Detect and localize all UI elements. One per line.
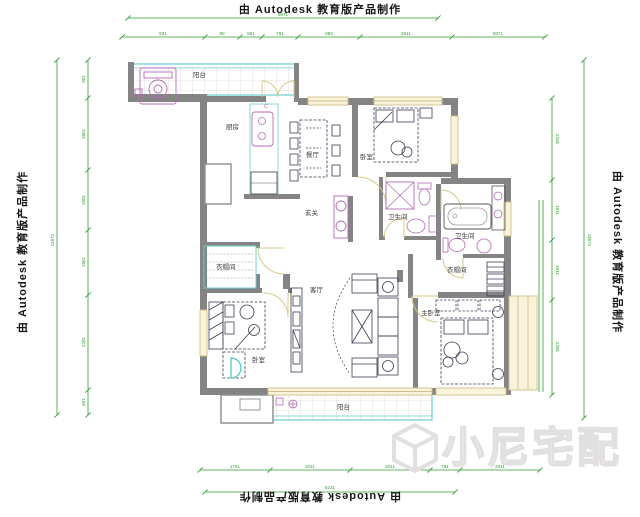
bathroom-right-fixtures	[443, 186, 505, 253]
room-label-bedroom-left: 卧室	[252, 355, 266, 364]
bathroom-center-fixtures	[386, 182, 437, 233]
room-label-cloakroom-right: 衣帽间	[447, 265, 467, 274]
room-label-kitchen: 厨房	[226, 122, 239, 131]
svg-text:761: 761	[276, 31, 284, 36]
svg-text:2101: 2101	[555, 134, 560, 145]
balcony-top-area	[133, 64, 296, 95]
svg-text:931: 931	[159, 31, 167, 36]
entry-cabinet	[334, 196, 348, 238]
living-room-furniture	[291, 274, 398, 377]
room-labels: 阳台 厨房 餐厅 卧室 卫生间 卫生间 衣帽间 主卧室 客厅 卧室 衣帽间 玄关…	[193, 70, 475, 411]
svg-text:601: 601	[81, 398, 86, 406]
room-label-balcony-bottom: 阳台	[337, 402, 350, 411]
svg-text:883: 883	[325, 31, 333, 36]
watermark-cube-icon	[392, 423, 438, 473]
svg-text:5871: 5871	[493, 31, 504, 36]
room-label-bedroom-top-right: 卧室	[360, 152, 374, 161]
stair-lobby	[221, 395, 273, 423]
autodesk-credit-bottom: 由 Autodesk 教育版产品制作	[0, 489, 640, 505]
kitchen-counter	[250, 104, 278, 194]
svg-text:1511: 1511	[555, 265, 560, 275]
room-label-bathroom-center: 卫生间	[388, 212, 408, 221]
autodesk-credit-left: 由 Autodesk 教育版产品制作	[14, 171, 30, 333]
master-bed	[436, 300, 504, 384]
svg-text:1801: 1801	[81, 128, 86, 139]
svg-text:2281: 2281	[81, 336, 86, 347]
svg-text:2611: 2611	[401, 31, 411, 36]
autodesk-credit-top: 由 Autodesk 教育版产品制作	[0, 1, 640, 17]
bed-top-right	[374, 108, 432, 162]
svg-text:1761: 1761	[230, 464, 241, 469]
room-label-master-bedroom: 主卧室	[421, 308, 441, 317]
svg-text:901: 901	[81, 75, 86, 83]
svg-text:2011: 2011	[305, 464, 315, 469]
bedroom-left-furniture	[209, 302, 265, 378]
cloakroom-right-shelves	[487, 262, 504, 296]
dining-table-set	[290, 120, 340, 181]
svg-text:1561: 1561	[81, 256, 86, 267]
watermark: 小尼宅配	[392, 420, 640, 476]
room-label-cloakroom-left: 衣帽间	[216, 262, 236, 271]
flue-niche	[205, 164, 231, 204]
balcony-bottom-area	[270, 394, 432, 420]
dim-right-overall: 11871	[587, 234, 592, 247]
svg-text:1511: 1511	[555, 205, 560, 215]
walls	[128, 62, 511, 395]
autodesk-credit-right: 由 Autodesk 教育版产品制作	[610, 171, 626, 333]
watermark-text: 小尼宅配	[442, 427, 622, 469]
room-label-entry-hall: 玄关	[305, 208, 319, 217]
column-mark: C	[264, 104, 268, 110]
svg-text:2281: 2281	[555, 342, 560, 353]
dim-left-overall: 11871	[50, 233, 55, 246]
room-label-dining: 餐厅	[306, 150, 320, 159]
floor-plan-screenshot: 由 Autodesk 教育版产品制作 由 Autodesk 教育版产品制作 由 …	[0, 0, 640, 512]
room-label-living-room: 客厅	[310, 285, 324, 294]
room-label-bathroom-right: 卫生间	[455, 231, 475, 240]
room-label-balcony-top: 阳台	[193, 70, 206, 79]
svg-text:90: 90	[219, 31, 225, 36]
svg-text:1501: 1501	[81, 194, 86, 205]
svg-text:881: 881	[247, 31, 255, 36]
